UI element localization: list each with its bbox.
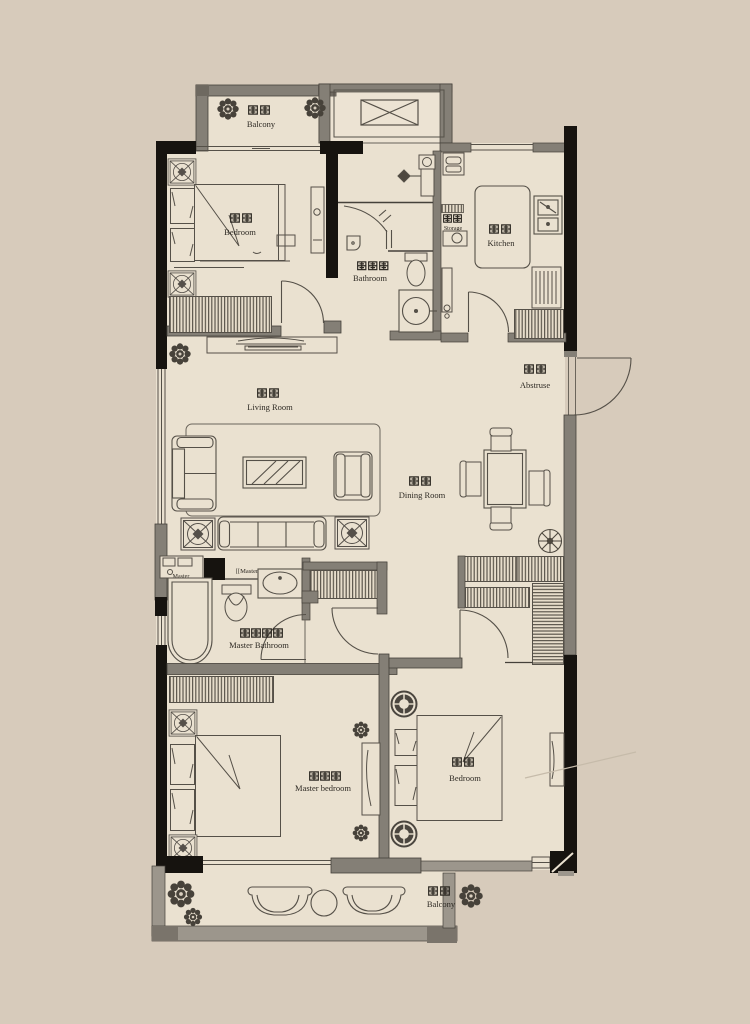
svg-text:Master bedroom: Master bedroom: [295, 783, 351, 793]
svg-text:Living Room: Living Room: [247, 402, 293, 412]
svg-text:Bedroom: Bedroom: [449, 773, 481, 783]
svg-text:Abstruse: Abstruse: [520, 380, 550, 390]
svg-text:Bathroom: Bathroom: [353, 273, 387, 283]
svg-text:Balcony: Balcony: [247, 119, 276, 129]
svg-text:Master Bathroom: Master Bathroom: [229, 640, 289, 650]
svg-text:Balcony: Balcony: [427, 899, 456, 909]
svg-text:Kitchen: Kitchen: [488, 238, 516, 248]
svg-text:Dining Room: Dining Room: [399, 490, 446, 500]
svg-text:Bedroom: Bedroom: [224, 227, 256, 237]
